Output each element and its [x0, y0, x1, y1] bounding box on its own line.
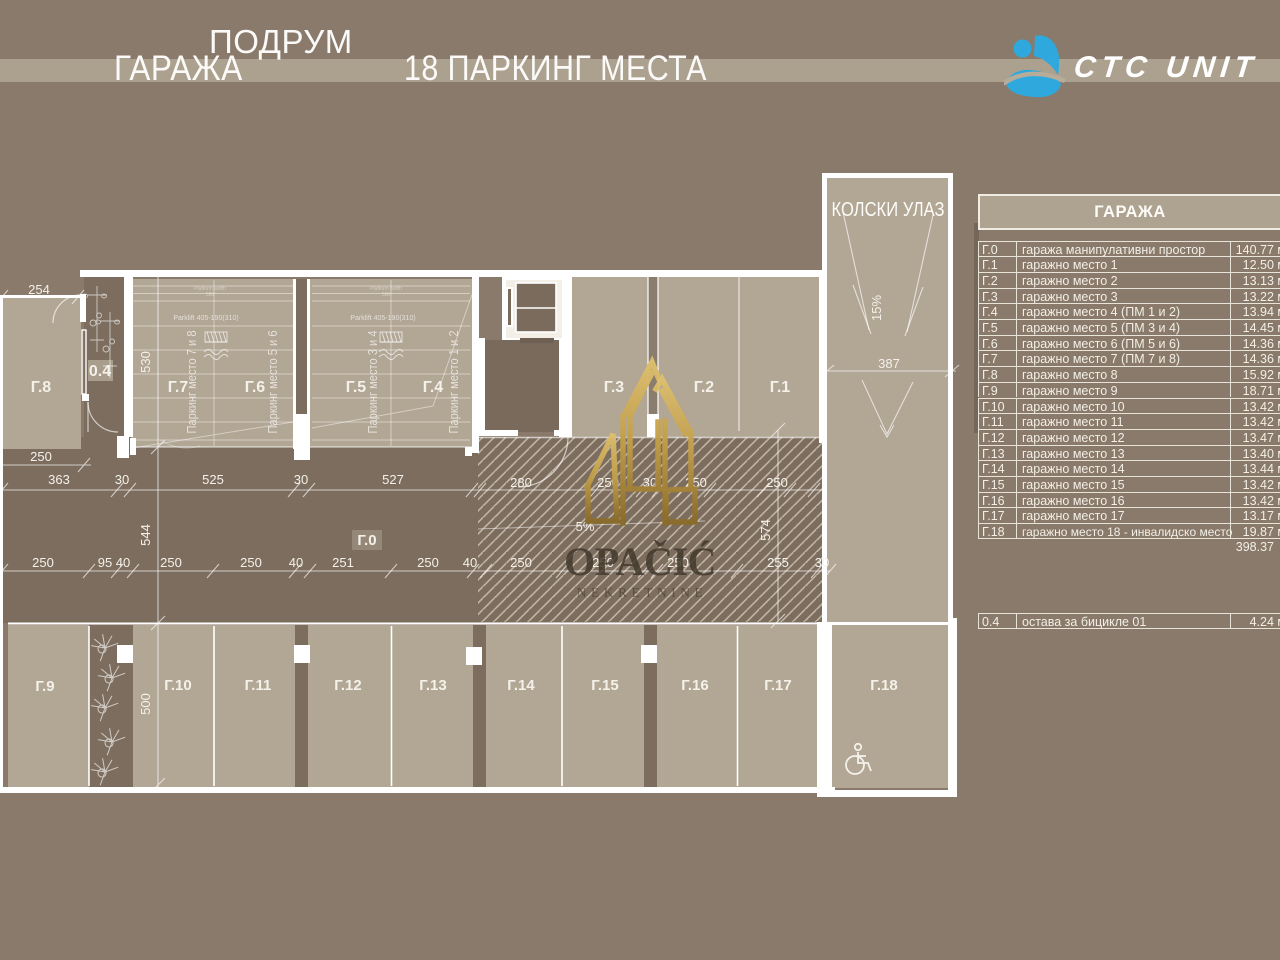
svg-text:15%: 15% [869, 295, 884, 321]
svg-text:Г.17: Г.17 [764, 677, 791, 694]
svg-text:Паркинг место 1 и 2: Паркинг место 1 и 2 [447, 330, 461, 433]
svg-text:255: 255 [767, 555, 789, 570]
svg-text:Г.1: Г.1 [770, 379, 791, 396]
svg-text:500: 500 [138, 693, 153, 715]
svg-text:250: 250 [32, 555, 54, 570]
svg-text:Г.8: Г.8 [31, 379, 52, 396]
svg-text:Г.9: Г.9 [35, 678, 54, 695]
svg-text:250: 250 [766, 475, 788, 490]
svg-text:40: 40 [116, 555, 130, 570]
svg-text:251: 251 [332, 555, 354, 570]
svg-text:Паркинг место 7 и 8: Паркинг место 7 и 8 [185, 330, 199, 433]
svg-text:Г.0: Г.0 [357, 532, 376, 549]
svg-text:Г.12: Г.12 [334, 677, 361, 694]
svg-text:580: 580 [382, 292, 391, 298]
svg-text:Г.14: Г.14 [507, 677, 535, 694]
svg-text:387: 387 [878, 356, 900, 371]
svg-text:Г.13: Г.13 [419, 677, 446, 694]
svg-text:Г.15: Г.15 [591, 677, 618, 694]
svg-text:250: 250 [240, 555, 262, 570]
svg-text:280: 280 [510, 475, 532, 490]
svg-text:Г.18: Г.18 [870, 677, 897, 694]
svg-text:254: 254 [28, 282, 50, 297]
svg-text:544: 544 [138, 524, 153, 546]
svg-text:Г.10: Г.10 [164, 677, 191, 694]
svg-text:КОЛСКИ УЛАЗ: КОЛСКИ УЛАЗ [832, 199, 945, 221]
svg-text:Г.6: Г.6 [245, 379, 266, 396]
svg-text:250: 250 [417, 555, 439, 570]
svg-text:525: 525 [202, 472, 224, 487]
svg-text:527: 527 [382, 472, 404, 487]
svg-text:Г.16: Г.16 [681, 677, 708, 694]
svg-text:30: 30 [294, 472, 308, 487]
svg-text:30: 30 [115, 472, 129, 487]
svg-text:40: 40 [463, 555, 477, 570]
svg-text:530: 530 [138, 351, 153, 373]
svg-text:95: 95 [98, 555, 112, 570]
svg-text:40: 40 [289, 555, 303, 570]
svg-text:Г.11: Г.11 [245, 677, 272, 694]
svg-text:250: 250 [510, 555, 532, 570]
svg-text:30: 30 [815, 555, 829, 570]
svg-text:Parklift 405-190(310): Parklift 405-190(310) [173, 315, 238, 322]
svg-text:250: 250 [160, 555, 182, 570]
svg-text:Г.4: Г.4 [423, 379, 444, 396]
svg-text:574: 574 [758, 519, 773, 541]
svg-text:250: 250 [30, 449, 52, 464]
svg-text:Parklift 405-190(310): Parklift 405-190(310) [350, 315, 415, 322]
svg-text:Паркинг место 3 и 4: Паркинг место 3 и 4 [366, 330, 380, 433]
svg-text:Г.5: Г.5 [346, 379, 367, 396]
svg-text:363: 363 [48, 472, 70, 487]
svg-text:580: 580 [206, 292, 215, 298]
svg-text:Паркинг место 5 и 6: Паркинг место 5 и 6 [266, 330, 280, 433]
